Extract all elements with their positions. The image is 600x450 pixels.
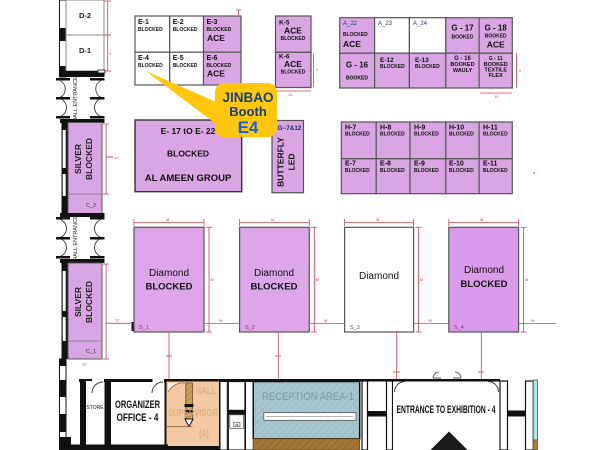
svg-text:E4: E4 — [238, 118, 259, 137]
svg-text:SILVER: SILVER — [73, 144, 83, 174]
svg-text:10: 10 — [494, 94, 499, 99]
svg-text:BLOCKED: BLOCKED — [173, 27, 198, 33]
svg-text:HALL ENTRANCE: HALL ENTRANCE — [73, 215, 79, 261]
svg-text:E-13: E-13 — [415, 57, 429, 64]
svg-text:E-1: E-1 — [138, 19, 149, 26]
svg-text:S_2: S_2 — [245, 325, 255, 331]
svg-text:BLOCKED: BLOCKED — [345, 168, 370, 174]
svg-text:12: 12 — [114, 155, 119, 160]
svg-text:BLOCKED: BLOCKED — [167, 149, 209, 159]
svg-text:BLOCKED: BLOCKED — [449, 168, 474, 174]
svg-text:S_3: S_3 — [350, 325, 360, 331]
svg-text:M: M — [271, 217, 274, 222]
svg-text:BLOCKED: BLOCKED — [84, 281, 94, 323]
svg-text:M: M — [211, 277, 214, 282]
svg-text:AL AMEEN GROUP: AL AMEEN GROUP — [145, 173, 232, 184]
svg-text:ACE: ACE — [284, 59, 302, 69]
svg-text:D-2: D-2 — [79, 11, 91, 20]
svg-text:FLEX: FLEX — [489, 73, 503, 79]
svg-text:BLOCKED: BLOCKED — [414, 168, 439, 174]
svg-text:SILVER: SILVER — [73, 287, 83, 317]
svg-text:BLOCKED: BLOCKED — [281, 70, 306, 76]
svg-text:H-11: H-11 — [483, 125, 498, 132]
svg-text:H-7: H-7 — [345, 125, 356, 132]
svg-text:Diamond: Diamond — [149, 268, 189, 279]
svg-text:BLOCKED: BLOCKED — [345, 132, 370, 138]
svg-text:ACE: ACE — [207, 33, 225, 43]
svg-text:E-2: E-2 — [173, 19, 184, 26]
svg-text:ACE: ACE — [487, 40, 505, 50]
svg-text:G--7&12: G--7&12 — [278, 125, 302, 132]
svg-text:BLOCKED: BLOCKED — [146, 282, 193, 293]
svg-text:BLOCKED: BLOCKED — [84, 138, 94, 180]
svg-text:BLOCKED: BLOCKED — [415, 64, 440, 70]
svg-text:(4): (4) — [199, 429, 209, 440]
svg-text:E-9: E-9 — [414, 161, 425, 168]
svg-text:M: M — [531, 318, 534, 323]
svg-text:BLOCKED: BLOCKED — [483, 168, 508, 174]
svg-text:Diamond: Diamond — [254, 268, 294, 279]
svg-text:BLOCKED: BLOCKED — [414, 132, 439, 138]
svg-text:Booth: Booth — [229, 104, 267, 119]
svg-text:BLOCKED: BLOCKED — [281, 36, 306, 42]
svg-text:BLOCKED: BLOCKED — [173, 63, 198, 69]
svg-text:E-11: E-11 — [483, 161, 498, 168]
svg-text:BLOCKED: BLOCKED — [461, 279, 508, 290]
svg-text:Diamond: Diamond — [464, 265, 504, 276]
svg-text:12: 12 — [115, 318, 120, 323]
svg-text:BUTTERFLY: BUTTERFLY — [276, 137, 286, 187]
svg-text:A_24: A_24 — [413, 21, 428, 27]
svg-text:BLOCKED: BLOCKED — [483, 132, 508, 138]
svg-text:RECEPTION AREA-1: RECEPTION AREA-1 — [262, 391, 354, 403]
svg-text:HALL ENTRANCE: HALL ENTRANCE — [73, 76, 79, 122]
svg-text:G - 18: G - 18 — [485, 24, 508, 33]
svg-text:ORGANIZER: ORGANIZER — [115, 399, 160, 411]
svg-text:E-12: E-12 — [380, 57, 394, 64]
svg-text:M: M — [324, 318, 327, 323]
svg-text:10: 10 — [288, 92, 293, 97]
svg-text:BLOCKED: BLOCKED — [138, 63, 163, 69]
svg-text:Diamond: Diamond — [359, 271, 399, 282]
svg-text:BLOCKED: BLOCKED — [380, 168, 405, 174]
svg-text:OFFICE - 4: OFFICE - 4 — [117, 412, 160, 424]
svg-text:HALL: HALL — [196, 386, 217, 397]
svg-text:M: M — [316, 277, 319, 282]
svg-text:E-4: E-4 — [138, 55, 149, 62]
svg-text:WAULY: WAULY — [453, 68, 473, 74]
svg-text:E-8: E-8 — [380, 161, 391, 168]
svg-text:S_4: S_4 — [454, 325, 464, 331]
svg-text:H-8: H-8 — [380, 125, 391, 132]
svg-text:M: M — [219, 318, 222, 323]
svg-text:ACE: ACE — [207, 69, 225, 79]
svg-text:BOOKED: BOOKED — [452, 35, 474, 41]
svg-text:E-3: E-3 — [207, 19, 218, 26]
svg-text:C_2: C_2 — [86, 203, 96, 209]
svg-text:H-10: H-10 — [449, 125, 464, 132]
svg-text:E- 17 tO E- 22: E- 17 tO E- 22 — [161, 126, 216, 136]
svg-text:10: 10 — [82, 362, 87, 367]
svg-text:BLOCKED: BLOCKED — [251, 282, 298, 293]
svg-text:ENTRANCE TO EXHIBITION - 4: ENTRANCE TO EXHIBITION - 4 — [397, 404, 497, 416]
svg-text:E-6: E-6 — [207, 55, 218, 62]
svg-text:G - 16: G - 16 — [346, 61, 369, 70]
svg-text:E-5: E-5 — [173, 55, 184, 62]
svg-text:M: M — [420, 277, 423, 282]
svg-text:BLOCKED: BLOCKED — [449, 132, 474, 138]
svg-text:BLOCKED: BLOCKED — [343, 32, 368, 38]
svg-text:M: M — [376, 217, 379, 222]
svg-text:A_22: A_22 — [343, 21, 358, 27]
svg-text:S_1: S_1 — [139, 325, 149, 331]
svg-text:LED: LED — [287, 154, 297, 171]
svg-text:G - 17: G - 17 — [451, 24, 474, 33]
svg-text:A_23: A_23 — [378, 21, 393, 27]
svg-text:M: M — [166, 217, 169, 222]
svg-text:D-1: D-1 — [79, 46, 91, 55]
svg-text:STORE: STORE — [86, 405, 104, 411]
svg-text:C_1: C_1 — [86, 349, 96, 355]
svg-text:ACE: ACE — [343, 39, 361, 49]
svg-text:SUPERVISOR: SUPERVISOR — [168, 408, 219, 419]
svg-text:H-9: H-9 — [414, 125, 425, 132]
svg-text:E-10: E-10 — [449, 161, 464, 168]
svg-text:M: M — [480, 217, 483, 222]
svg-text:ACE: ACE — [284, 26, 302, 36]
svg-text:E-7: E-7 — [345, 161, 356, 168]
svg-text:BLOCKED: BLOCKED — [380, 132, 405, 138]
svg-text:BOOKED: BOOKED — [346, 76, 368, 82]
svg-text:M: M — [429, 318, 432, 323]
svg-text:M: M — [525, 277, 528, 282]
svg-text:BLOCKED: BLOCKED — [380, 64, 405, 70]
svg-text:BLOCKED: BLOCKED — [138, 27, 163, 33]
svg-text:JINBAO: JINBAO — [222, 90, 273, 105]
